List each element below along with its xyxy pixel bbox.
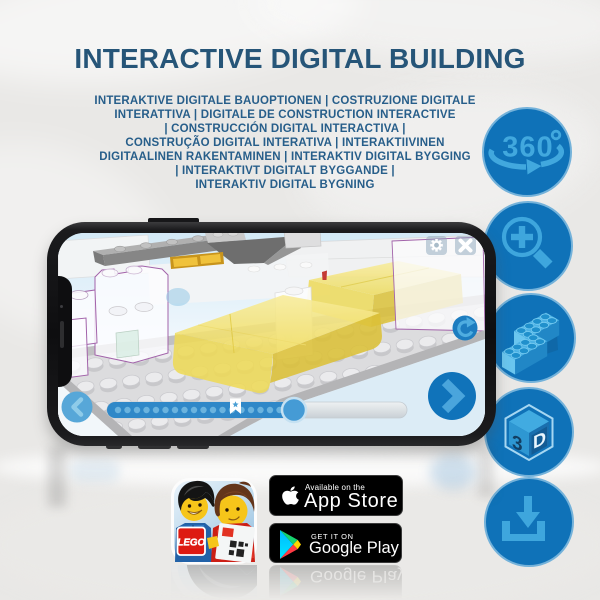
svg-text:LEGO: LEGO [177, 538, 205, 549]
svg-text:360: 360 [502, 132, 553, 164]
svg-text:3: 3 [512, 431, 523, 456]
